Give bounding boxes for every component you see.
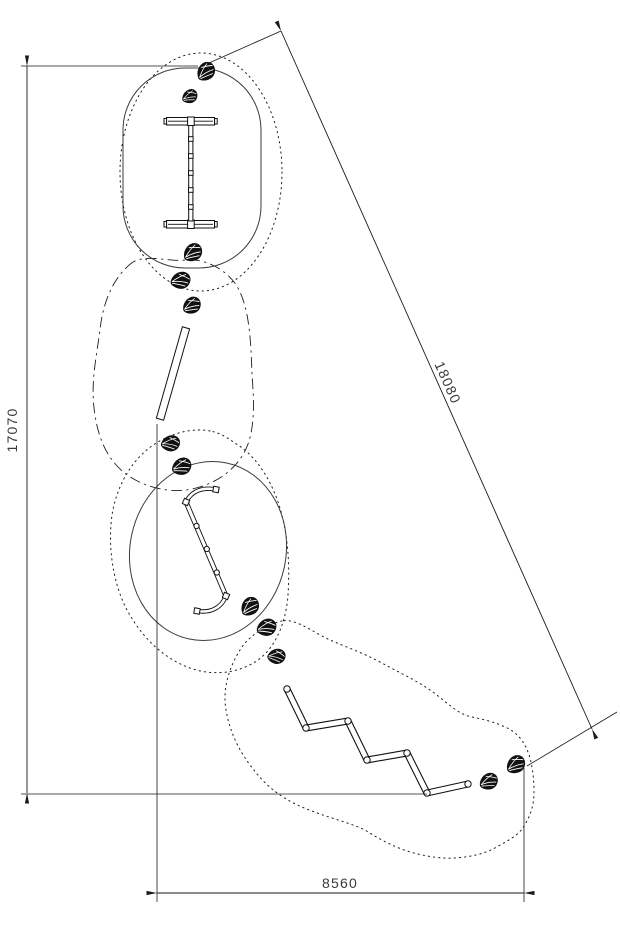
- planting-markers: [159, 62, 527, 793]
- site-plan-drawing: 17070 18080 8560: [0, 0, 620, 927]
- leaf-icon: [255, 615, 280, 640]
- leaf-icon: [265, 645, 288, 668]
- leaf-icon: [241, 597, 259, 616]
- dimension-vertical-17070: 17070: [4, 66, 427, 794]
- equipment-snake-beam: [182, 486, 229, 614]
- equipment-balance-beam: [156, 327, 189, 420]
- leaf-icon: [169, 268, 194, 293]
- dimension-label-horizontal: 8560: [322, 875, 358, 891]
- safety-zone-outlines: [93, 53, 534, 858]
- leaf-icon: [181, 87, 199, 106]
- dimension-label-vertical: 17070: [4, 408, 20, 453]
- leaf-icon: [182, 294, 203, 315]
- leaf-icon: [183, 241, 204, 262]
- zigzag-joints: [284, 686, 471, 796]
- leaf-icon: [506, 753, 527, 774]
- equipment-swing-top-view: [164, 117, 217, 229]
- dimension-label-diagonal: 18080: [431, 359, 464, 407]
- equipment-area-ovals: [113, 68, 303, 655]
- leaf-icon: [170, 454, 194, 478]
- leaf-icon: [159, 431, 183, 455]
- dimension-horizontal-8560: 8560: [157, 424, 524, 902]
- safety-zone-lower: [111, 430, 289, 673]
- equipment-zigzag-beam: [284, 686, 471, 796]
- site-plan-page: 17070 18080 8560: [0, 0, 620, 927]
- leaf-icon: [478, 770, 500, 792]
- leaf-icon: [197, 62, 215, 81]
